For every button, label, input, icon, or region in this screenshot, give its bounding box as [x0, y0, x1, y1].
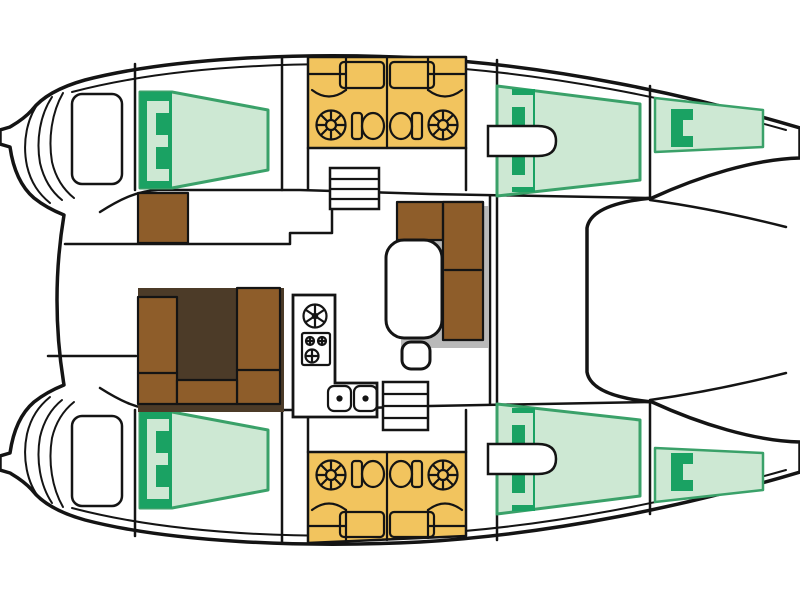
port-forward-cabin-berth: [488, 86, 640, 196]
port-aft-cabin-berth: [140, 92, 268, 188]
cabin-entry-walkway: [488, 126, 556, 156]
pillow-shelf: [147, 419, 169, 499]
starboard-heads: [308, 452, 466, 543]
saloon-stool: [402, 342, 430, 369]
starboard-forward-cabin-berth: [488, 404, 640, 514]
catamaran-floor-plan: [0, 0, 800, 600]
saloon-table: [386, 240, 442, 338]
pillow-shelf: [147, 101, 169, 181]
port-companionway-stairs: [330, 168, 379, 209]
u-settee-bottom: [177, 380, 237, 404]
starboard-forepeak-berth: [655, 448, 763, 502]
saloon: [386, 202, 489, 369]
u-settee-left-arm: [138, 297, 177, 404]
port-forepeak-berth: [655, 98, 763, 152]
port-heads: [308, 57, 466, 148]
starboard-companionway-stairs: [383, 382, 428, 430]
port-trampoline-edge: [650, 200, 786, 227]
port-swim-platform: [72, 94, 122, 184]
starboard-swim-platform: [72, 416, 122, 506]
u-settee-right-arm: [237, 288, 280, 404]
floor-plan-svg: [0, 0, 800, 600]
starboard-aft-cabin-berth: [140, 412, 268, 508]
cockpit-side-seat: [138, 193, 188, 243]
cabin-entry-walkway: [488, 444, 556, 474]
starboard-trampoline-edge: [650, 373, 786, 400]
